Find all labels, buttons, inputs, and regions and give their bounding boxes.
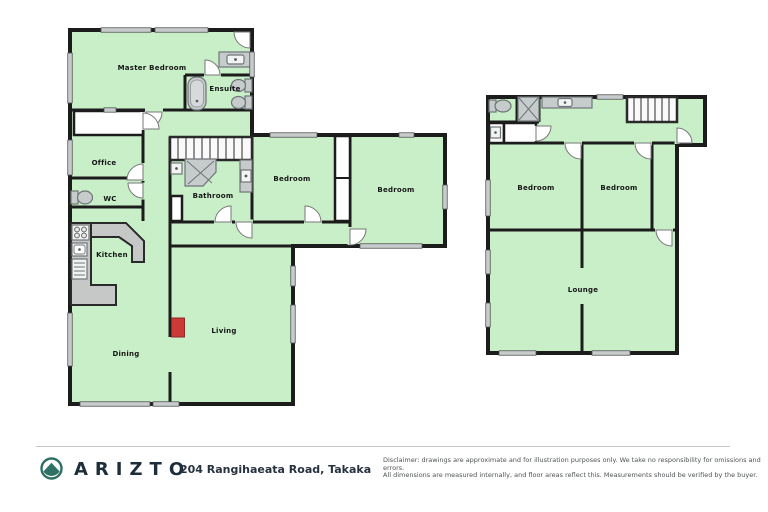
sink-icon: [171, 163, 182, 174]
fireplace-marker: [172, 318, 185, 337]
shower-icon: [185, 159, 216, 186]
arizto-logo-icon: [40, 457, 63, 480]
bathtub-icon: [188, 77, 206, 110]
room-label: Living: [211, 327, 236, 335]
bathroom-vanity: [240, 160, 252, 192]
disclaimer-line-1: Disclaimer: drawings are approximate and…: [383, 457, 761, 472]
ensuite-vanity: [219, 52, 252, 67]
room-label: Office: [92, 159, 117, 167]
toilet-icon: [71, 191, 93, 204]
room-label: Bedroom: [600, 184, 637, 192]
toilet-icon: [232, 96, 253, 109]
room-label: Lounge: [568, 286, 599, 294]
disclaimer-text: Disclaimer: drawings are approximate and…: [383, 457, 761, 480]
linen-cupboard: [171, 196, 182, 221]
room-label: Bedroom: [517, 184, 554, 192]
room-label: Bedroom: [273, 175, 310, 183]
stairs: [627, 97, 677, 122]
hall-room: [504, 123, 536, 143]
floorplan-page: Master Bedroom Ensuite Office WC Kitchen…: [0, 0, 768, 512]
stairs: [170, 137, 252, 160]
shower-icon: [518, 97, 539, 121]
property-address: 204 Rangihaeata Road, Takaka: [180, 463, 371, 476]
room-label: Bathroom: [193, 192, 234, 200]
room-label: WC: [103, 195, 116, 203]
upper-floor-plan: Bedroom Bedroom Lounge: [486, 95, 705, 356]
footer-divider: [36, 446, 730, 447]
entry-room: [74, 111, 143, 135]
disclaimer-line-2: All dimensions are measured internally, …: [383, 472, 761, 480]
sink-icon: [491, 127, 501, 138]
toilet-icon: [489, 100, 511, 112]
sink-icon: [72, 243, 87, 256]
stove-icon: [72, 225, 89, 240]
ground-floor-outline: [70, 30, 445, 404]
room-label: Kitchen: [96, 251, 128, 259]
vanity: [542, 97, 592, 108]
room-label: Dining: [112, 350, 139, 358]
room-label: Ensuite: [209, 85, 240, 93]
floorplan-drawing: Master Bedroom Ensuite Office WC Kitchen…: [0, 0, 768, 512]
dishwasher-icon: [72, 259, 87, 279]
room-label: Master Bedroom: [118, 64, 187, 72]
room-label: Bedroom: [377, 186, 414, 194]
brand-name: ARIZTO: [74, 459, 191, 480]
